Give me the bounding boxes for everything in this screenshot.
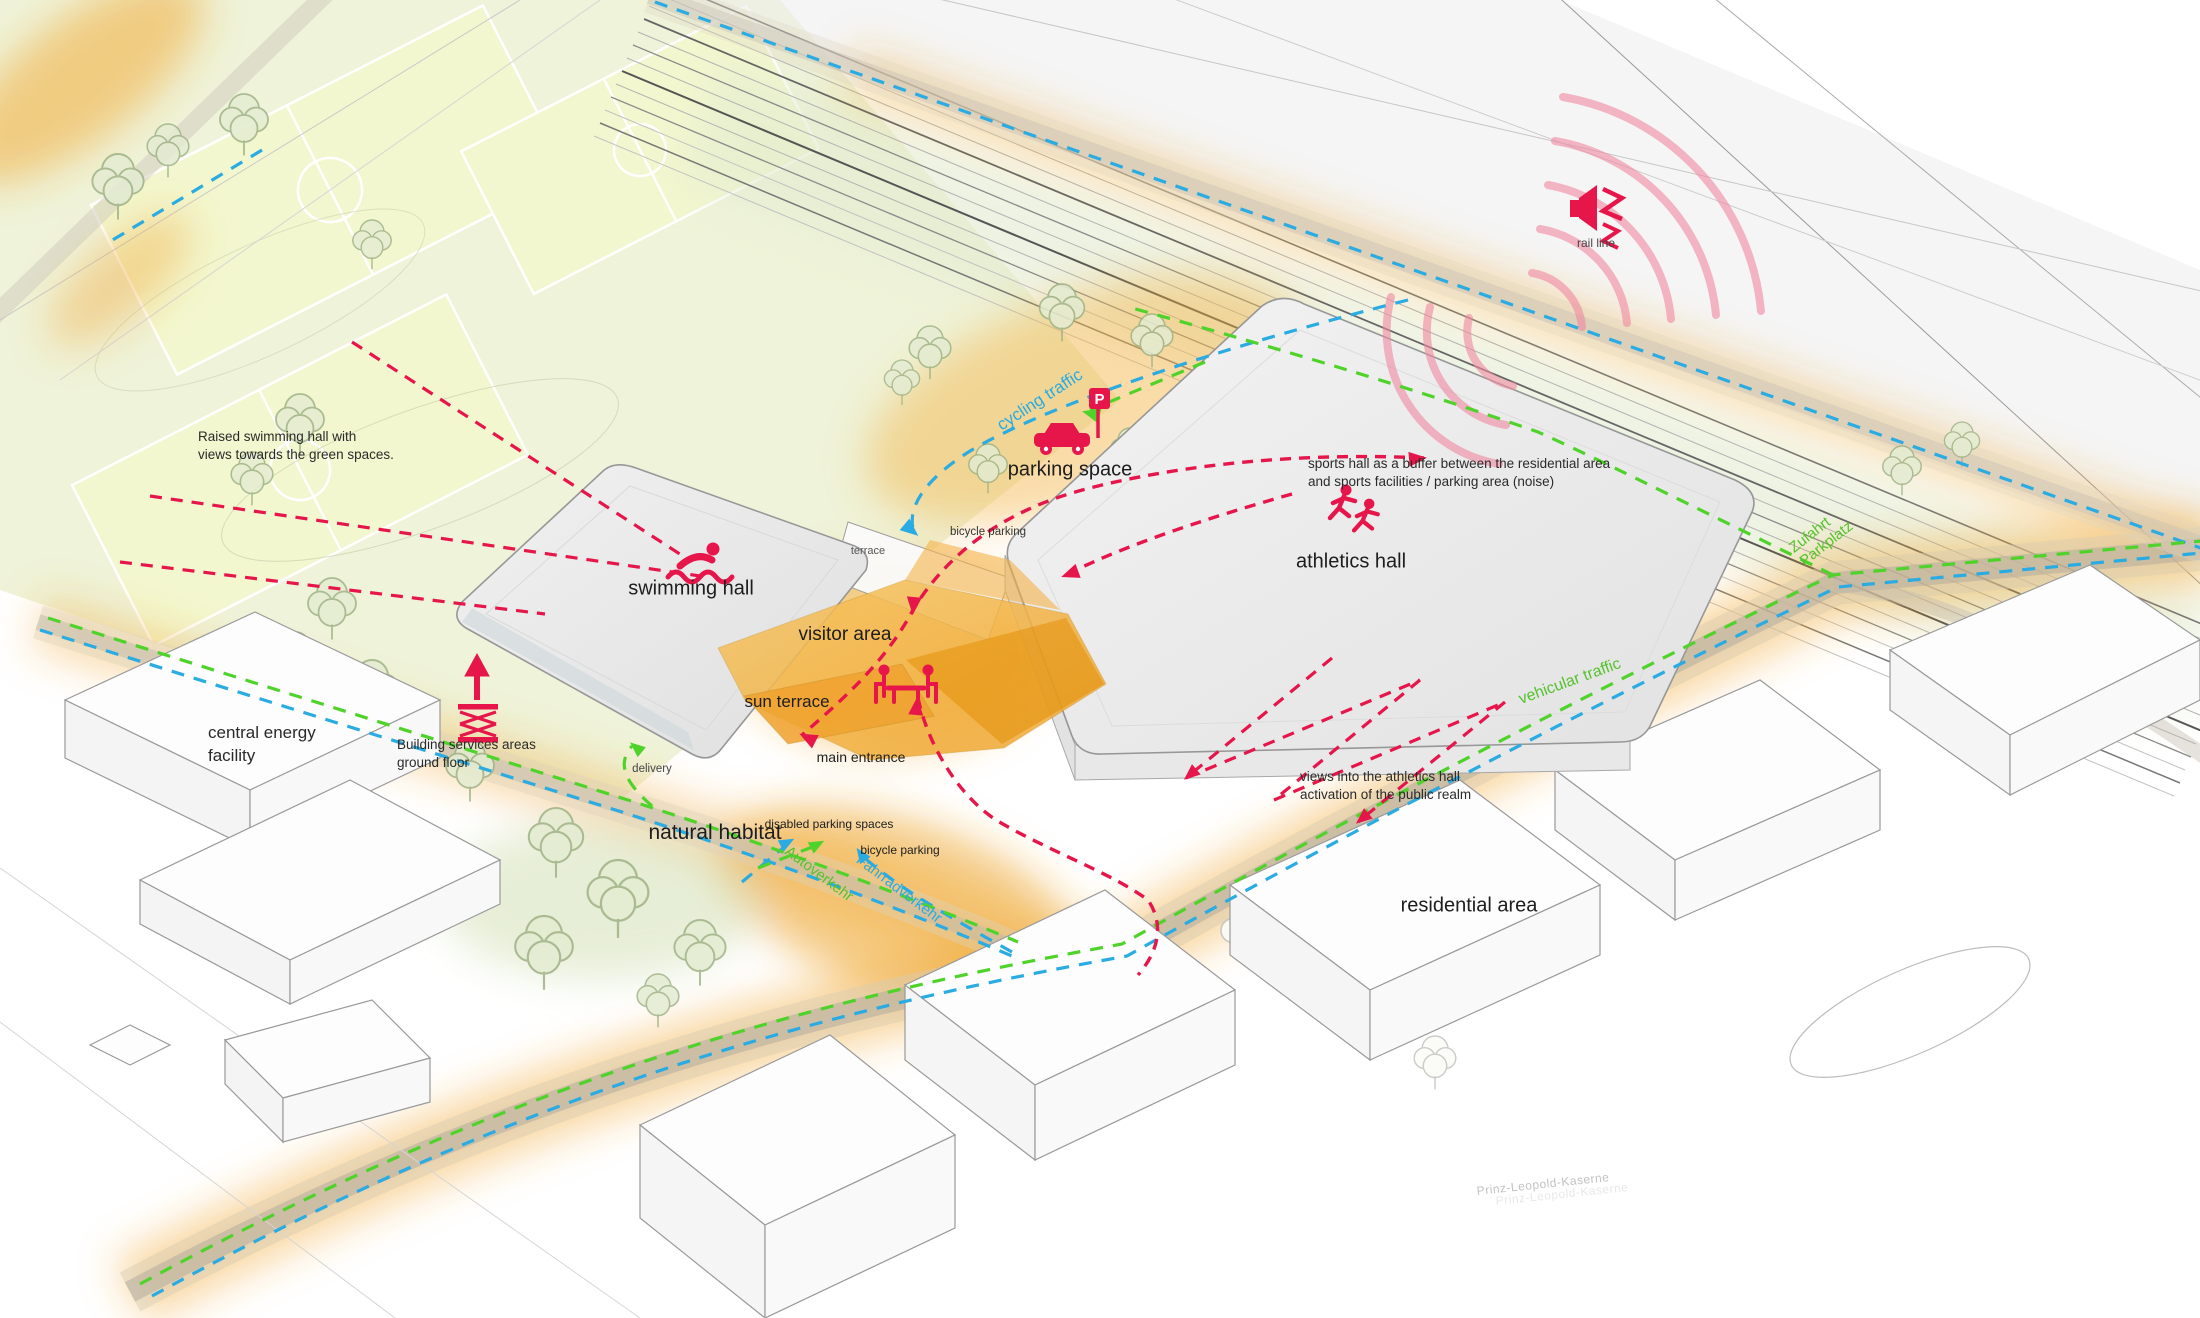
parking-p-letter: P: [1094, 391, 1104, 408]
visitor-area-label: visitor area: [799, 624, 892, 646]
buffer-note: sports hall as a buffer between the resi…: [1308, 455, 1610, 491]
athletics-hall-label: athletics hall: [1296, 551, 1406, 574]
bicycle-parking-bottom-label: bicycle parking: [860, 843, 939, 857]
central-energy-line1: central energy: [208, 722, 316, 745]
building-services-line2: ground floor: [397, 754, 536, 772]
delivery-label: delivery: [632, 763, 672, 775]
swimming-hall-label: swimming hall: [628, 578, 754, 601]
site-diagram: P rail line cycling traffic parking spac…: [0, 0, 2200, 1318]
natural-habitat-label: natural habitat: [648, 821, 781, 845]
central-energy-line2: facility: [208, 745, 316, 768]
building-services-note: Building services areas ground floor: [397, 736, 536, 772]
main-entrance-label: main entrance: [817, 749, 906, 765]
rail-line-label: rail line: [1577, 236, 1615, 250]
terrace-label: terrace: [851, 545, 885, 557]
buffer-note-line2: and sports facilities / parking area (no…: [1308, 473, 1610, 491]
disabled-parking-label: disabled parking spaces: [765, 817, 894, 831]
views-note-line2: activation of the public realm: [1300, 786, 1471, 804]
views-note: views into the athletics hall activation…: [1300, 768, 1471, 804]
views-note-line1: views into the athletics hall: [1300, 768, 1471, 786]
sun-terrace-label: sun terrace: [744, 692, 829, 712]
diagram-canvas: P: [0, 0, 2200, 1318]
buffer-note-line1: sports hall as a buffer between the resi…: [1308, 455, 1610, 473]
raised-swimming-line1: Raised swimming hall with: [198, 428, 394, 446]
building-services-line1: Building services areas: [397, 736, 536, 754]
central-energy-label: central energy facility: [208, 722, 316, 768]
residential-area-label: residential area: [1401, 895, 1538, 918]
raised-swimming-note: Raised swimming hall with views towards …: [198, 428, 394, 464]
bicycle-parking-top-label: bicycle parking: [950, 526, 1026, 538]
parking-space-label: parking space: [1008, 459, 1133, 482]
raised-swimming-line2: views towards the green spaces.: [198, 446, 394, 464]
